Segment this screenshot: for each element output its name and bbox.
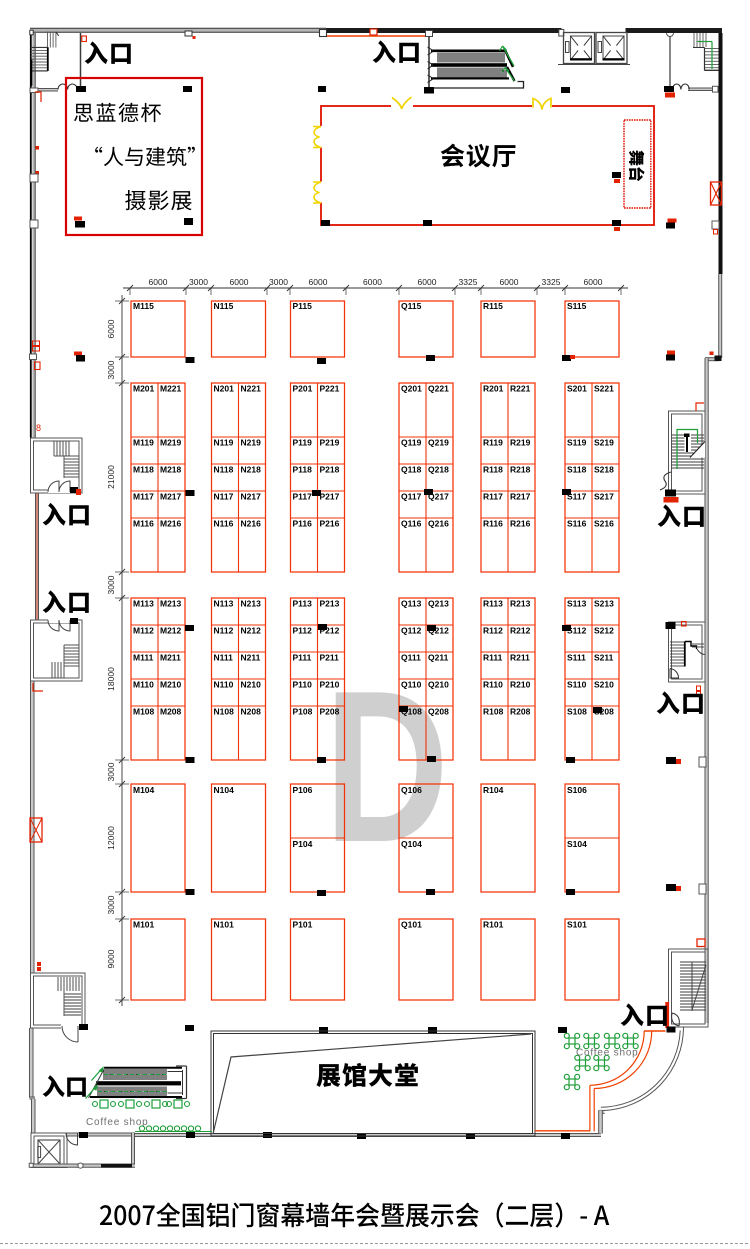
svg-text:N201: N201 <box>214 384 235 394</box>
svg-text:S106: S106 <box>567 785 587 795</box>
svg-text:M213: M213 <box>160 599 182 609</box>
svg-text:Q101: Q101 <box>401 920 422 930</box>
svg-text:P221: P221 <box>320 384 340 394</box>
svg-text:N117: N117 <box>214 492 234 502</box>
svg-text:P201: P201 <box>293 384 313 394</box>
svg-text:R112: R112 <box>483 626 503 636</box>
svg-text:12000: 12000 <box>106 826 116 850</box>
svg-text:Q208: Q208 <box>428 707 449 717</box>
svg-text:R213: R213 <box>510 599 531 609</box>
svg-text:M117: M117 <box>133 492 154 502</box>
svg-text:N208: N208 <box>241 707 262 717</box>
svg-text:S216: S216 <box>594 519 614 529</box>
svg-text:6000: 6000 <box>418 277 437 287</box>
svg-text:S118: S118 <box>567 465 587 475</box>
svg-text:R201: R201 <box>483 384 504 394</box>
svg-text:Q210: Q210 <box>428 680 449 690</box>
svg-text:S219: S219 <box>594 438 614 448</box>
svg-text:P112: P112 <box>293 626 313 636</box>
svg-text:Q104: Q104 <box>401 839 422 849</box>
svg-text:M118: M118 <box>133 465 154 475</box>
svg-text:P118: P118 <box>293 465 313 475</box>
svg-text:Q218: Q218 <box>428 465 449 475</box>
svg-text:3325: 3325 <box>542 277 561 287</box>
svg-text:M210: M210 <box>160 680 182 690</box>
svg-text:R210: R210 <box>510 680 531 690</box>
svg-text:M218: M218 <box>160 465 182 475</box>
svg-text:6000: 6000 <box>106 319 116 338</box>
svg-text:P218: P218 <box>320 465 340 475</box>
svg-text:R216: R216 <box>510 519 531 529</box>
svg-text:Q113: Q113 <box>401 599 422 609</box>
svg-text:S108: S108 <box>567 707 587 717</box>
svg-text:S221: S221 <box>594 384 614 394</box>
svg-text:P208: P208 <box>320 707 340 717</box>
svg-text:M108: M108 <box>133 707 155 717</box>
svg-text:N217: N217 <box>241 492 262 502</box>
svg-text:3000: 3000 <box>106 360 116 379</box>
svg-text:S201: S201 <box>567 384 587 394</box>
svg-text:Q118: Q118 <box>401 465 422 475</box>
svg-text:S110: S110 <box>567 680 587 690</box>
svg-text:Q211: Q211 <box>428 653 449 663</box>
svg-text:S101: S101 <box>567 920 587 930</box>
svg-text:9000: 9000 <box>106 949 116 968</box>
svg-text:P110: P110 <box>293 680 313 690</box>
svg-text:N216: N216 <box>241 519 262 529</box>
svg-text:6000: 6000 <box>500 277 519 287</box>
svg-text:N118: N118 <box>214 465 234 475</box>
svg-text:R113: R113 <box>483 599 503 609</box>
svg-text:N108: N108 <box>214 707 235 717</box>
svg-text:R104: R104 <box>483 785 504 795</box>
svg-text:6000: 6000 <box>309 277 328 287</box>
svg-text:21000: 21000 <box>106 465 116 489</box>
svg-text:6000: 6000 <box>230 277 249 287</box>
svg-text:P117: P117 <box>293 492 313 502</box>
svg-text:R118: R118 <box>483 465 503 475</box>
svg-text:3000: 3000 <box>269 277 288 287</box>
svg-text:R211: R211 <box>510 653 530 663</box>
svg-text:M212: M212 <box>160 626 182 636</box>
svg-text:N112: N112 <box>214 626 234 636</box>
svg-text:R119: R119 <box>483 438 503 448</box>
svg-text:S212: S212 <box>594 626 614 636</box>
svg-text:3000: 3000 <box>106 762 116 781</box>
svg-text:P213: P213 <box>320 599 340 609</box>
svg-text:S113: S113 <box>567 599 587 609</box>
svg-text:Q221: Q221 <box>428 384 449 394</box>
svg-text:M216: M216 <box>160 519 182 529</box>
svg-text:3000: 3000 <box>106 575 116 594</box>
svg-text:S111: S111 <box>567 653 586 663</box>
svg-text:N113: N113 <box>214 599 234 609</box>
svg-text:S116: S116 <box>567 519 587 529</box>
svg-text:6000: 6000 <box>149 277 168 287</box>
svg-text:M219: M219 <box>160 438 182 448</box>
svg-text:Q119: Q119 <box>401 438 422 448</box>
svg-text:M211: M211 <box>160 653 181 663</box>
svg-text:Coffee shop: Coffee shop <box>576 1048 639 1059</box>
svg-text:M217: M217 <box>160 492 182 502</box>
svg-text:Q117: Q117 <box>401 492 422 502</box>
svg-text:N212: N212 <box>241 626 262 636</box>
svg-text:P219: P219 <box>320 438 340 448</box>
svg-text:M201: M201 <box>133 384 155 394</box>
svg-text:6000: 6000 <box>363 277 382 287</box>
svg-text:N110: N110 <box>214 680 234 690</box>
svg-text:R110: R110 <box>483 680 503 690</box>
svg-text:P216: P216 <box>320 519 340 529</box>
svg-text:N115: N115 <box>214 301 234 311</box>
svg-text:18000: 18000 <box>106 667 116 691</box>
svg-text:R221: R221 <box>510 384 531 394</box>
svg-text:Q112: Q112 <box>401 626 422 636</box>
svg-text:N116: N116 <box>214 519 234 529</box>
svg-text:M111: M111 <box>133 653 154 663</box>
svg-text:R101: R101 <box>483 920 504 930</box>
svg-text:R208: R208 <box>510 707 531 717</box>
svg-text:S217: S217 <box>594 492 614 502</box>
svg-text:P115: P115 <box>293 301 313 311</box>
svg-text:S210: S210 <box>594 680 614 690</box>
svg-text:N221: N221 <box>241 384 262 394</box>
svg-text:3325: 3325 <box>459 277 478 287</box>
svg-text:M101: M101 <box>133 920 155 930</box>
svg-text:M208: M208 <box>160 707 182 717</box>
svg-text:6000: 6000 <box>584 277 603 287</box>
svg-text:S213: S213 <box>594 599 614 609</box>
svg-text:Coffee shop: Coffee shop <box>86 1117 149 1128</box>
svg-text:P217: P217 <box>320 492 340 502</box>
svg-text:R212: R212 <box>510 626 531 636</box>
svg-text:P113: P113 <box>293 599 313 609</box>
svg-text:N213: N213 <box>241 599 262 609</box>
svg-text:P108: P108 <box>293 707 313 717</box>
svg-text:R116: R116 <box>483 519 503 529</box>
svg-text:M115: M115 <box>133 301 154 311</box>
svg-text:3000: 3000 <box>106 895 116 914</box>
svg-text:Q219: Q219 <box>428 438 449 448</box>
svg-text:P106: P106 <box>293 785 313 795</box>
svg-text:N111: N111 <box>214 653 234 663</box>
svg-text:S104: S104 <box>567 839 587 849</box>
svg-text:N219: N219 <box>241 438 262 448</box>
svg-text:M116: M116 <box>133 519 154 529</box>
svg-text:Q111: Q111 <box>401 653 421 663</box>
svg-text:P210: P210 <box>320 680 340 690</box>
svg-text:R117: R117 <box>483 492 503 502</box>
svg-text:Q213: Q213 <box>428 599 449 609</box>
svg-text:Q216: Q216 <box>428 519 449 529</box>
svg-text:N104: N104 <box>214 785 235 795</box>
svg-text:S211: S211 <box>594 653 614 663</box>
svg-text:R217: R217 <box>510 492 531 502</box>
svg-text:R108: R108 <box>483 707 504 717</box>
svg-text:Q115: Q115 <box>401 301 422 311</box>
svg-text:Q201: Q201 <box>401 384 422 394</box>
svg-text:S218: S218 <box>594 465 614 475</box>
svg-text:S119: S119 <box>567 438 587 448</box>
svg-text:Q106: Q106 <box>401 785 422 795</box>
svg-text:Q110: Q110 <box>401 680 422 690</box>
svg-text:P119: P119 <box>293 438 313 448</box>
svg-text:M110: M110 <box>133 680 154 690</box>
svg-text:M104: M104 <box>133 785 155 795</box>
svg-text:N119: N119 <box>214 438 234 448</box>
svg-text:R111: R111 <box>483 653 503 663</box>
svg-text:3000: 3000 <box>189 277 208 287</box>
svg-text:N218: N218 <box>241 465 262 475</box>
svg-text:M112: M112 <box>133 626 154 636</box>
svg-text:P101: P101 <box>293 920 313 930</box>
svg-text:N210: N210 <box>241 680 262 690</box>
svg-text:S115: S115 <box>567 301 587 311</box>
svg-text:R218: R218 <box>510 465 531 475</box>
svg-text:P116: P116 <box>293 519 313 529</box>
svg-text:M221: M221 <box>160 384 182 394</box>
svg-text:P211: P211 <box>320 653 340 663</box>
svg-text:N101: N101 <box>214 920 235 930</box>
svg-text:Q116: Q116 <box>401 519 422 529</box>
svg-text:R115: R115 <box>483 301 503 311</box>
svg-text:P104: P104 <box>293 839 313 849</box>
svg-text:8: 8 <box>36 423 41 433</box>
svg-text:P111: P111 <box>293 653 312 663</box>
svg-text:M113: M113 <box>133 599 154 609</box>
svg-text:M119: M119 <box>133 438 154 448</box>
svg-text:R219: R219 <box>510 438 531 448</box>
svg-text:N211: N211 <box>241 653 261 663</box>
